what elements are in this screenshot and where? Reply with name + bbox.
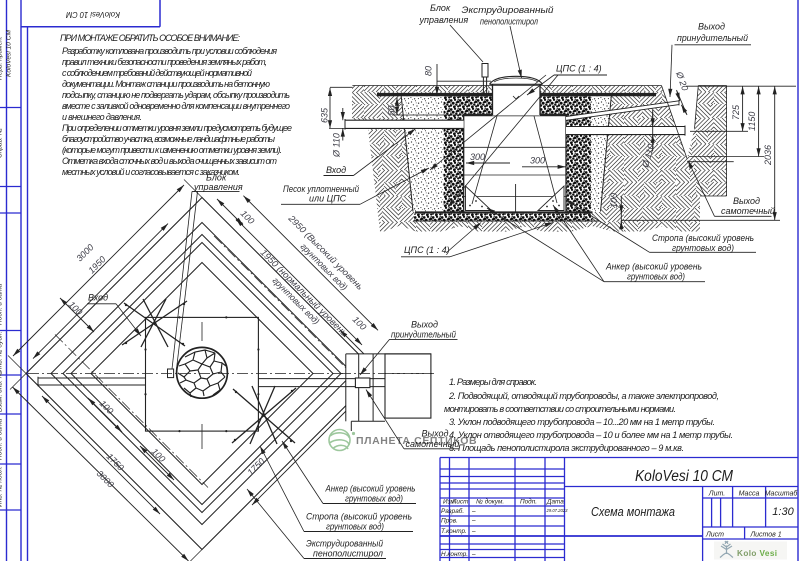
svg-text:Инв. № подл.: Инв. № подл. [0,466,4,507]
svg-text:1150: 1150 [747,112,757,131]
svg-text:Перв. примен.: Перв. примен. [0,36,4,80]
svg-text:При определении отметки уровня: При определении отметки уровня земли пре… [62,123,292,133]
svg-text:Анкер (высокий уровень: Анкер (высокий уровень [325,484,416,494]
svg-text:Масштаб: Масштаб [765,490,799,498]
svg-text:–: – [471,551,476,558]
svg-text:2036: 2036 [763,145,773,166]
svg-text:Лит.: Лит. [708,491,725,498]
svg-text:–: – [471,508,476,515]
svg-text:Справ. №: Справ. № [0,128,4,158]
svg-text:Схема монтажа: Схема монтажа [591,504,675,519]
svg-text:правил техники безопасности пр: правил техники безопасности проведения з… [62,57,267,67]
svg-text:Н.контр.: Н.контр. [441,551,468,558]
svg-text:управления: управления [193,182,243,192]
svg-text:725: 725 [731,104,741,120]
svg-text:Стропа (высокий уровень: Стропа (высокий уровень [652,233,754,243]
svg-text:(которые могут привести к изме: (которые могут привести к изменению отме… [62,145,282,155]
svg-text:пенополистирол: пенополистирол [313,549,383,559]
svg-text:KoloVesi 10 СМ: KoloVesi 10 СМ [65,10,120,20]
svg-text:Песок уплотненный: Песок уплотненный [283,184,359,194]
svg-text:100: 100 [609,193,619,208]
svg-text:Стропа (высокий уровень: Стропа (высокий уровень [306,512,412,522]
svg-text:грунтовых вод): грунтовых вод) [672,243,734,253]
svg-text:Лист: Лист [705,532,724,539]
svg-text:Пров.: Пров. [441,518,458,525]
svg-text:управления: управления [419,15,469,25]
svg-text:KoloVesi 10 СМ: KoloVesi 10 СМ [6,30,13,77]
svg-text:29.07.2023: 29.07.2023 [546,508,569,513]
svg-text:ПРИ МОНТАЖЕ ОБРАТИТЬ ОСОБОЕ ВН: ПРИ МОНТАЖЕ ОБРАТИТЬ ОСОБОЕ ВНИМАНИЕ: [60,33,240,43]
svg-text:грунтовых вод): грунтовых вод) [627,271,685,281]
svg-text:или ЦПС: или ЦПС [309,194,347,204]
svg-text:1. Размеры для справок.: 1. Размеры для справок. [449,377,537,387]
svg-text:Дата: Дата [546,499,564,506]
svg-text:Выход: Выход [411,320,438,330]
svg-text:благоустройство участка, возмо: благоустройство участка, возможные ландш… [62,134,275,144]
svg-text:300: 300 [530,156,545,166]
svg-text:принудительный: принудительный [391,330,456,340]
svg-text:Экструдированный: Экструдированный [306,539,383,549]
svg-text:Блок: Блок [430,3,451,13]
svg-text:Лист: Лист [451,499,469,506]
svg-text:монтировать в соответствии со: монтировать в соответствии со строительн… [444,404,676,414]
svg-text:300: 300 [470,152,485,162]
svg-text:4. Уклон отводящего трубопрово: 4. Уклон отводящего трубопровода – 10 и … [449,430,733,440]
svg-text:Выход: Выход [733,196,760,206]
svg-text:Масса: Масса [739,491,760,498]
svg-text:документации. Монтаж станции п: документации. Монтаж станции производить… [62,79,270,89]
svg-text:подсыпку, станцию не подвергат: подсыпку, станцию не подвергать ударам, … [62,90,290,100]
svg-text:1:30: 1:30 [772,506,794,518]
svg-text:5. Площадь пенополистирола экс: 5. Площадь пенополистирола экструдирован… [449,443,684,453]
svg-text:–: – [471,518,476,525]
svg-text:Листов 1: Листов 1 [749,532,781,539]
svg-text:самотечный: самотечный [721,206,775,216]
svg-text:635: 635 [320,107,330,123]
svg-text:ЦПС (1 : 4): ЦПС (1 : 4) [556,64,602,74]
svg-text:ПЛАНЕТА СЕПТИКОВ: ПЛАНЕТА СЕПТИКОВ [356,435,477,447]
svg-text:Подп. и дата: Подп. и дата [0,283,4,325]
svg-text:грунтовых вод): грунтовых вод) [345,494,403,504]
svg-text:Инв. № дубл.: Инв. № дубл. [0,331,4,372]
svg-text:Отметка входа сточных вод и вы: Отметка входа сточных вод и выхода очище… [62,156,277,166]
svg-text:Экструдированный: Экструдированный [462,5,554,15]
svg-text:принудительный: принудительный [677,33,748,43]
svg-text:KoloVesi 10 СМ: KoloVesi 10 СМ [635,468,733,485]
svg-text:пенополистирол: пенополистирол [480,17,538,27]
svg-text:Т.контр.: Т.контр. [441,528,467,535]
svg-text:Вход: Вход [88,293,108,303]
svg-text:3. Уклон подводящего трубопров: 3. Уклон подводящего трубопровода – 10..… [449,417,715,427]
svg-text:грунтовых вод): грунтовых вод) [326,522,384,532]
svg-text:Выход: Выход [698,22,725,32]
svg-text:Разраб.: Разраб. [441,507,464,515]
svg-text:ЦПС (1 : 4): ЦПС (1 : 4) [404,245,450,255]
svg-text:и внешнего давления.: и внешнего давления. [62,112,142,122]
svg-text:с соблюдением требований дейст: с соблюдением требований действующей нор… [62,68,252,78]
svg-text:Ø 110: Ø 110 [332,133,342,158]
svg-text:50: 50 [387,105,397,115]
svg-text:Подп. и дата: Подп. и дата [0,418,4,460]
svg-text:–: – [471,528,476,535]
svg-text:Блок: Блок [206,173,227,183]
svg-text:Анкер (высокий уровень: Анкер (высокий уровень [605,262,702,272]
svg-text:Разработку котлована производи: Разработку котлована производить при усл… [62,46,277,56]
svg-text:вместе с заливкой одновременно: вместе с заливкой одновременно для компе… [62,101,290,111]
svg-text:2. Подводящий, отводящий трубо: 2. Подводящий, отводящий трубопроводы, а… [448,391,719,401]
svg-text:№ докум.: № докум. [476,498,504,506]
svg-text:Вход: Вход [326,165,346,175]
svg-text:Подп.: Подп. [520,498,537,506]
svg-text:Kolo Vesi: Kolo Vesi [737,549,777,558]
svg-text:Взам. инв. №: Взам. инв. № [0,371,4,412]
svg-text:80: 80 [424,66,434,76]
